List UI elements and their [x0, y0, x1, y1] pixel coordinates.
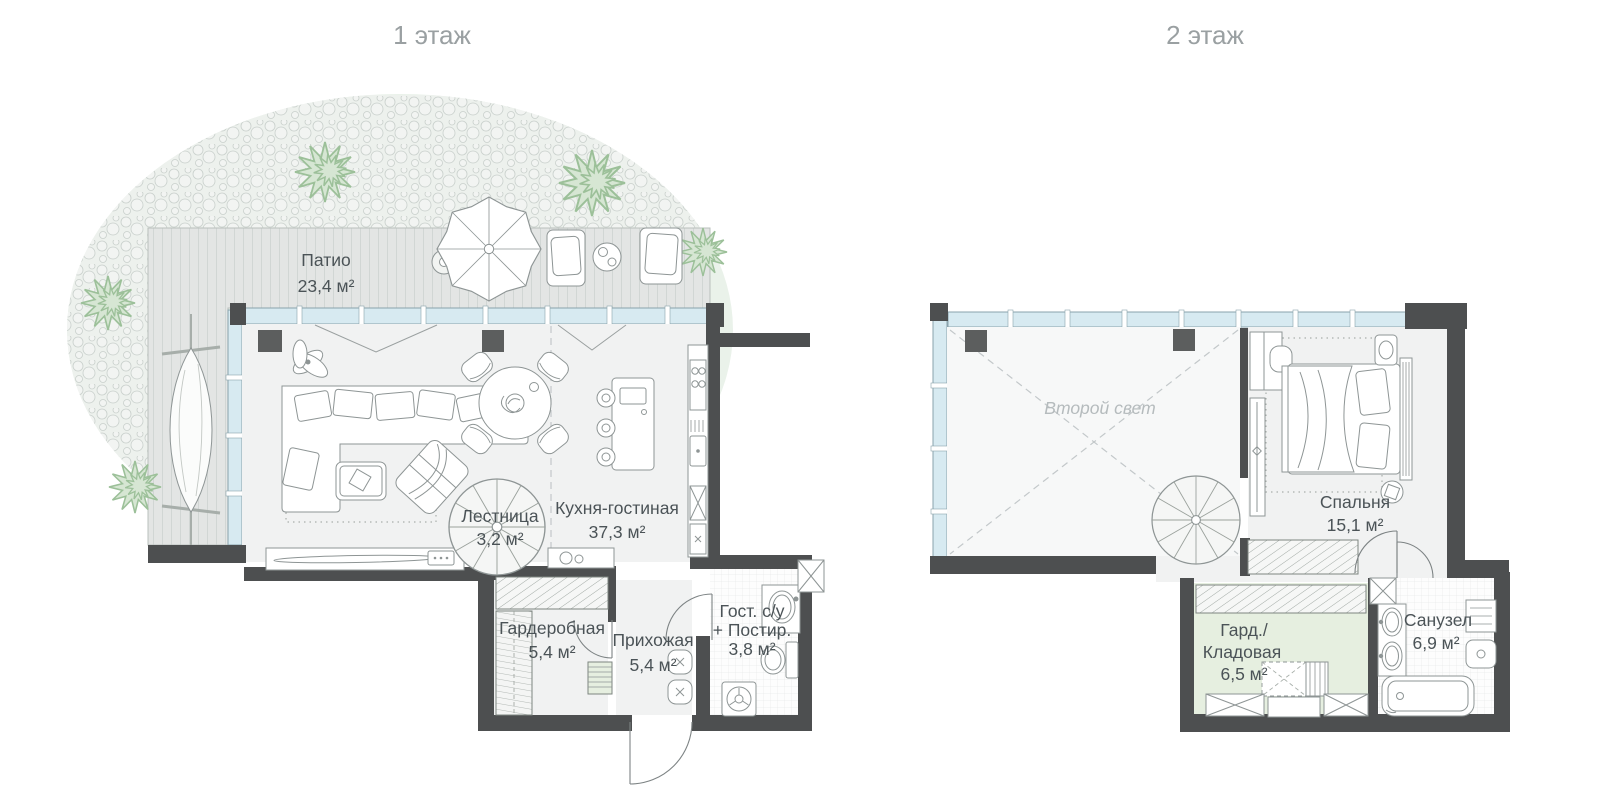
svg-text:Прихожая: Прихожая [612, 630, 693, 650]
pouf [668, 680, 692, 704]
shaft-box [1206, 694, 1264, 716]
washing-machine-icon [722, 682, 756, 716]
svg-text:5,4 м²: 5,4 м² [629, 655, 676, 675]
window-band-top [238, 306, 710, 326]
kitchen-counter [688, 345, 708, 557]
tv-console [266, 548, 464, 570]
svg-text:15,1 м²: 15,1 м² [1327, 515, 1384, 535]
room-label-void: Второй свет [1044, 398, 1155, 418]
shaft-box [798, 560, 824, 592]
window-band-top [948, 310, 1410, 329]
column [1173, 329, 1195, 351]
svg-text:Спальня: Спальня [1320, 492, 1390, 512]
svg-text:Патио: Патио [301, 250, 350, 270]
side-table [593, 243, 621, 271]
floor1-title: 1 этаж [393, 20, 471, 50]
svg-text:3,8 м²: 3,8 м² [728, 639, 775, 659]
column [965, 330, 987, 352]
tall-wardrobe [1250, 398, 1265, 516]
window-band-left [931, 318, 949, 558]
svg-text:23,4 м²: 23,4 м² [298, 276, 355, 296]
svg-text:Санузел: Санузел [1404, 610, 1472, 630]
svg-text:6,9 м²: 6,9 м² [1412, 633, 1459, 653]
bathtub [1382, 676, 1474, 716]
folding-rack [1262, 662, 1328, 696]
spiral-staircase [449, 479, 545, 575]
closet-rack [1248, 540, 1358, 574]
floor2-plan: 2 этаж Второй свет Спальня 15,1 м² Гард.… [930, 20, 1510, 732]
double-sink [1378, 604, 1406, 676]
svg-text:Кладовая: Кладовая [1203, 642, 1281, 662]
lounge-chair [547, 230, 585, 286]
svg-text:Лестница: Лестница [461, 506, 538, 526]
svg-text:3,2 м²: 3,2 м² [476, 529, 523, 549]
toilet [1466, 640, 1496, 668]
entrance-door [630, 722, 692, 784]
window-band-left [226, 310, 244, 545]
shaft-box [1370, 578, 1396, 604]
svg-text:6,5 м²: 6,5 м² [1220, 664, 1267, 684]
svg-text:Гардеробная: Гардеробная [499, 618, 605, 638]
floorplan-image: 1 этаж Патио 23,4 м² Кухня-гостиная 37,3… [0, 0, 1600, 799]
svg-text:Кухня-гостиная: Кухня-гостиная [555, 498, 679, 518]
floor1-plan: 1 этаж Патио 23,4 м² Кухня-гостиная 37,3… [65, 20, 824, 784]
spiral-staircase [1152, 476, 1240, 564]
column [482, 330, 504, 352]
stairs-steps [588, 662, 612, 694]
shaft-box [1324, 694, 1368, 716]
svg-text:+ Постир.: + Постир. [713, 620, 792, 640]
niche [1268, 697, 1320, 717]
kitchen-island [597, 378, 654, 470]
storage-shelf [1196, 585, 1366, 613]
sideboard [548, 548, 614, 568]
svg-text:Гард./: Гард./ [1220, 620, 1268, 640]
svg-text:5,4 м²: 5,4 м² [528, 642, 575, 662]
lounge-chair [640, 228, 682, 284]
svg-text:37,3 м²: 37,3 м² [589, 522, 646, 542]
nightstand [1375, 335, 1397, 365]
floor2-title: 2 этаж [1166, 20, 1244, 50]
column [258, 330, 282, 352]
svg-text:Гост. с/у: Гост. с/у [720, 601, 785, 621]
coffee-table [336, 462, 386, 500]
bed [1282, 358, 1412, 480]
